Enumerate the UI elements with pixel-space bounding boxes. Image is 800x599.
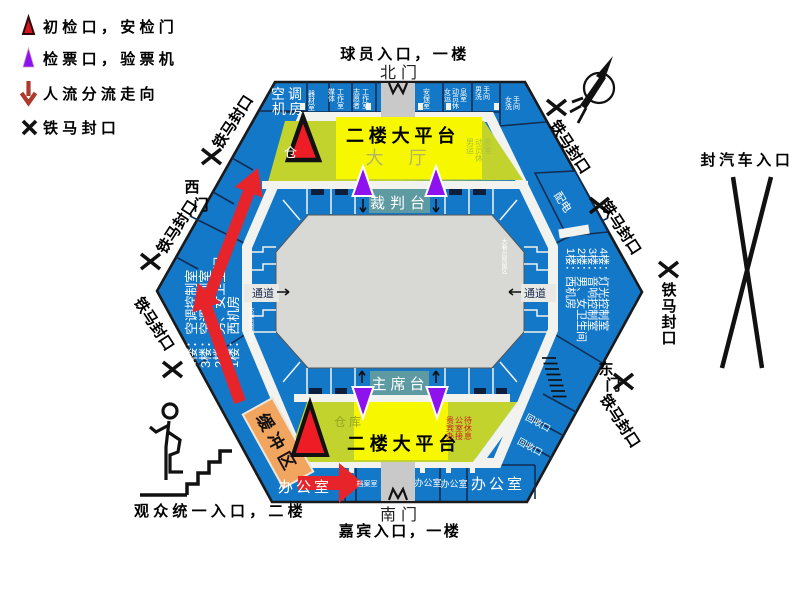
svg-text:口: 口 <box>661 330 676 347</box>
svg-text:4楼：空调控制室: 4楼：空调控制室 <box>184 270 199 368</box>
svg-text:贵宾办: 贵宾办 <box>446 415 455 441</box>
svg-text:二楼大平台: 二楼大平台 <box>346 125 460 146</box>
svg-text:公室接: 公室接 <box>455 416 464 441</box>
svg-text:安保室: 安保室 <box>423 87 431 109</box>
svg-text:息室: 息室 <box>484 137 493 154</box>
svg-text:机房: 机房 <box>272 101 306 117</box>
svg-text:仓库: 仓库 <box>334 414 364 429</box>
svg-text:通道: 通道 <box>524 286 546 300</box>
svg-text:办公室: 办公室 <box>414 477 441 488</box>
svg-text:1楼：西机房: 1楼：西机房 <box>564 248 578 309</box>
svg-text:封汽车入口: 封汽车入口 <box>700 151 793 169</box>
svg-text:球员入口，一楼: 球员入口，一楼 <box>340 45 470 63</box>
svg-text:息室: 息室 <box>460 87 468 102</box>
svg-text:器材室: 器材室 <box>308 90 316 111</box>
svg-text:铁马封口: 铁马封口 <box>43 119 120 137</box>
svg-text:通道: 通道 <box>252 286 274 300</box>
svg-text:人流分流走向: 人流分流走向 <box>43 85 159 103</box>
svg-text:手间: 手间 <box>483 85 491 101</box>
svg-text:志愿者: 志愿者 <box>353 87 361 110</box>
svg-text:女洗: 女洗 <box>505 95 513 111</box>
svg-text:女运: 女运 <box>444 87 452 103</box>
svg-text:南门: 南门 <box>380 506 422 524</box>
svg-text:档案室: 档案室 <box>357 479 378 488</box>
svg-text:初检口，安检门: 初检口，安检门 <box>43 18 178 36</box>
svg-text:3楼：音响控制室: 3楼：音响控制室 <box>586 248 600 331</box>
svg-text:北门: 北门 <box>380 64 422 82</box>
svg-text:大 厅: 大 厅 <box>365 148 436 168</box>
svg-text:2楼：男、女卫生间: 2楼：男、女卫生间 <box>575 248 589 342</box>
svg-text:4楼：灯光控制室: 4楼：灯光控制室 <box>597 248 611 331</box>
svg-text:手间: 手间 <box>513 95 521 111</box>
svg-text:大看台预留区: 大看台预留区 <box>247 305 254 342</box>
svg-text:媒体: 媒体 <box>328 87 336 103</box>
svg-text:大看台预留区: 大看台预留区 <box>500 237 507 274</box>
svg-text:工作室: 工作室 <box>337 88 345 109</box>
svg-text:裁判台: 裁判台 <box>370 195 430 212</box>
svg-text:动员休: 动员休 <box>452 87 460 110</box>
svg-text:西: 西 <box>184 179 199 196</box>
svg-text:待休息: 待休息 <box>464 415 473 440</box>
svg-text:空调: 空调 <box>271 86 305 102</box>
svg-text:办公室: 办公室 <box>471 476 525 493</box>
svg-text:办公室: 办公室 <box>440 478 467 489</box>
svg-text:办公室: 办公室 <box>278 479 332 496</box>
svg-text:检票口，验票机: 检票口，验票机 <box>43 50 178 68</box>
svg-text:男运: 男运 <box>466 138 475 155</box>
svg-text:男洗: 男洗 <box>475 86 483 101</box>
svg-text:嘉宾入口，一楼: 嘉宾入口，一楼 <box>338 522 462 540</box>
svg-text:观众统一入口，二楼: 观众统一入口，二楼 <box>134 502 307 520</box>
svg-text:东: 东 <box>598 360 613 378</box>
svg-text:封: 封 <box>661 313 676 331</box>
svg-text:动员休: 动员休 <box>475 137 484 163</box>
svg-text:主席台: 主席台 <box>371 376 428 393</box>
svg-text:仓: 仓 <box>284 145 297 160</box>
svg-text:工作室: 工作室 <box>362 88 370 109</box>
svg-text:马: 马 <box>661 298 676 315</box>
svg-text:二楼大平台: 二楼大平台 <box>347 433 461 454</box>
svg-text:铁: 铁 <box>661 281 676 299</box>
